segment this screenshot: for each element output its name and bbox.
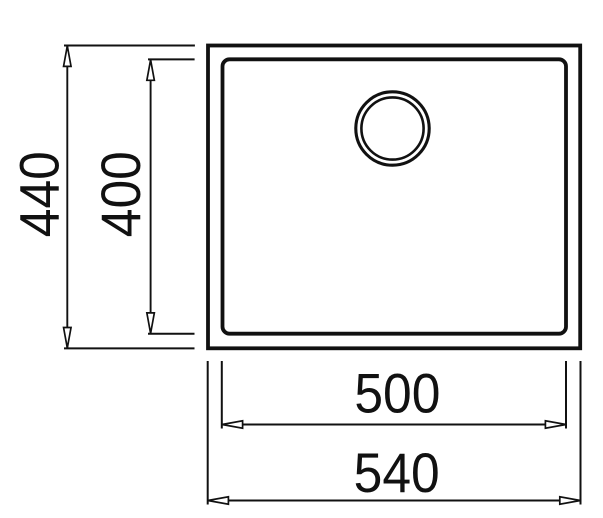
- svg-text:500: 500: [354, 363, 440, 425]
- svg-text:400: 400: [90, 151, 152, 237]
- svg-text:440: 440: [9, 151, 71, 237]
- svg-text:540: 540: [354, 442, 440, 504]
